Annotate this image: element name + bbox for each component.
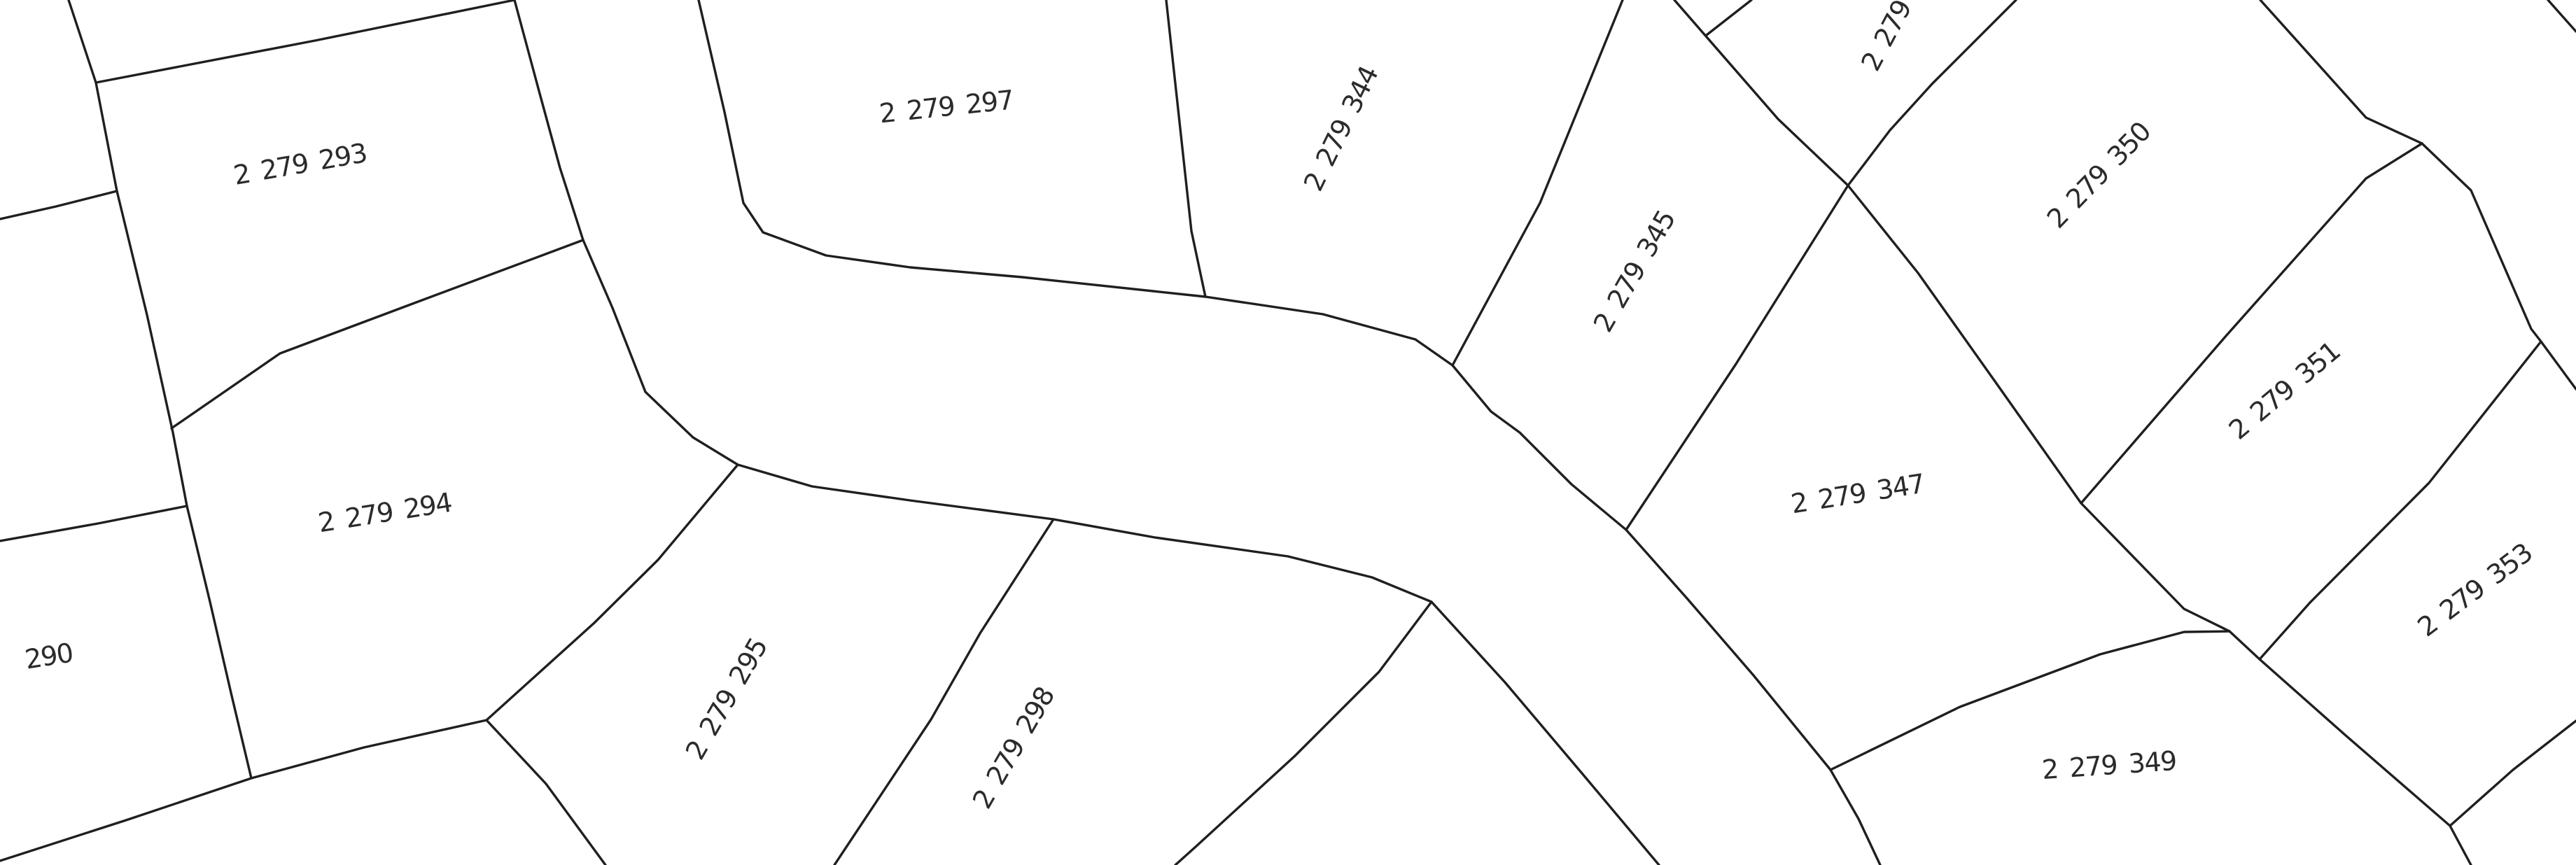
parcel-labels-layer: 2 279 2932 279 2942902 279 2952 279 2972… bbox=[23, 0, 2538, 814]
parcel350-northeast-edge bbox=[2260, 0, 2422, 143]
cadastral-map-page: 2 279 2932 279 2942902 279 2952 279 2972… bbox=[0, 0, 2576, 865]
parcel293-bottom-edge bbox=[171, 240, 583, 428]
parcel-2279293-label: 2 279 293 bbox=[231, 137, 369, 191]
left-edge-branch-lower bbox=[0, 506, 187, 541]
parcel297-344-boundary bbox=[1166, 0, 1205, 297]
parcel-2279298-label: 2 279 298 bbox=[967, 682, 1060, 814]
parcel353-southeast-edge bbox=[2450, 721, 2576, 826]
parcel-2279297-label: 2 279 297 bbox=[878, 85, 1014, 129]
top-right-corner-line bbox=[2548, 0, 2576, 31]
road-upper-edge bbox=[699, 0, 1880, 865]
southwest-corner-line bbox=[0, 778, 251, 861]
parcel-boundaries-layer bbox=[0, 0, 2576, 865]
parcel-2279349-label: 2 279 349 bbox=[2041, 745, 2178, 785]
parcel-2279353-label: 2 279 353 bbox=[2412, 537, 2538, 643]
road-lower-edge bbox=[514, 0, 1659, 865]
parcel295-west-line bbox=[486, 720, 605, 865]
grid-main-diagonal bbox=[1674, 0, 2471, 865]
parcel-2279344-label: 2 279 344 bbox=[1298, 62, 1385, 196]
west-boundary-line bbox=[69, 0, 251, 778]
parcel-2279295-label: 2 279 295 bbox=[680, 633, 773, 765]
parcel293-top-edge bbox=[96, 0, 514, 83]
parcel-2279347-label: 2 279 347 bbox=[1788, 468, 1926, 519]
parcel-2279351-label: 2 279 351 bbox=[2223, 336, 2346, 446]
parcel-227-partial-top-label: 2 279 bbox=[1855, 0, 1917, 76]
grid-northeast-diagonal bbox=[2422, 143, 2576, 389]
parcel-2279294-label: 2 279 294 bbox=[316, 487, 454, 539]
parcel-290-partial-label: 290 bbox=[23, 637, 75, 675]
left-edge-branch-upper bbox=[0, 191, 117, 219]
top-notch-line bbox=[1707, 0, 1751, 35]
parcel295-298-boundary bbox=[834, 519, 1053, 865]
parcel298-southeast-edge bbox=[1175, 602, 1431, 865]
parcel-2279345-label: 2 279 345 bbox=[1588, 206, 1681, 337]
parcel294-295-boundary bbox=[486, 465, 738, 720]
cadastral-map: 2 279 2932 279 2942902 279 2952 279 2972… bbox=[0, 0, 2576, 865]
parcel294-south-line bbox=[251, 720, 486, 778]
parcel350-351-boundary bbox=[2081, 143, 2422, 503]
parcel345-347-boundary bbox=[1626, 0, 2016, 530]
parcel-2279350-label: 2 279 350 bbox=[2041, 116, 2157, 234]
